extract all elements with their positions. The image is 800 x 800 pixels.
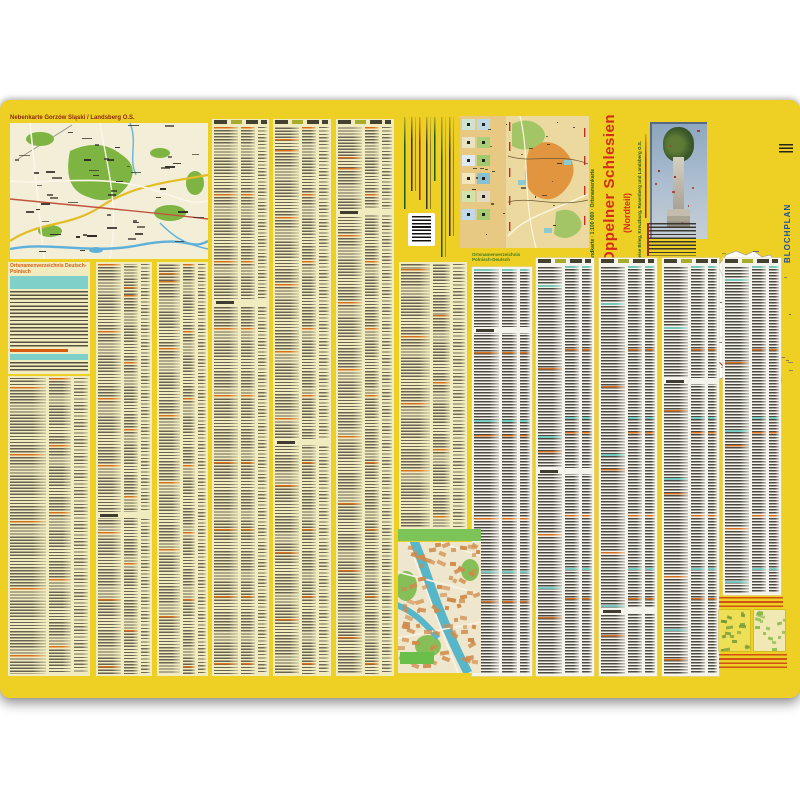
photo-flower-dots: [650, 122, 707, 239]
legend-sample-block: [719, 597, 791, 677]
index-column-group: [212, 119, 269, 676]
column-header: [725, 259, 779, 263]
price-text: [779, 144, 793, 155]
intro-highlight-note: [10, 276, 88, 289]
column-header: [601, 259, 655, 263]
index-column-group: [273, 119, 331, 676]
column-header: [338, 120, 392, 124]
cover-title: Oppelner Schlesien: [601, 114, 618, 263]
cover-subtitle: (Nordteil): [622, 193, 632, 233]
right-index-heading-line2: Polnisch-Deutsch: [472, 257, 534, 262]
inset-map-drawing: [10, 123, 208, 259]
cover-region-label: Kreise Brieg, Kreuzburg, Rosenberg und L…: [637, 141, 642, 263]
index-column-group: [96, 262, 152, 676]
cover-map-panel: [460, 116, 589, 248]
index-column-group: [472, 267, 532, 676]
index-column-group: [723, 258, 781, 595]
cover-series-label: Landkarte · 1:100 000 · Ortsnamenkarte: [590, 169, 596, 263]
column-header: [538, 259, 592, 263]
cover-legend-thumbnails: [462, 118, 504, 246]
column-header: [214, 120, 267, 124]
imprint-vertical-text-2: [441, 117, 458, 257]
imprint-vertical-text: [404, 117, 438, 209]
index-column-group: [399, 262, 467, 530]
monument-photo: [650, 122, 707, 239]
photo-caption-vertical: [645, 134, 648, 218]
city-map-title: [398, 529, 481, 541]
inset-map-title: Nebenkarte Gorzów Śląski / Landsberg O.S…: [10, 114, 208, 123]
publisher-name: BLOCHPLAN: [783, 208, 792, 263]
city-map-legend-box: [400, 652, 434, 664]
legend-sample-map: [719, 610, 750, 651]
right-index-heading: Ortsnamenverzeichnis Polnisch-Deutsch: [472, 252, 534, 265]
intro-subhead-dash: [10, 349, 68, 352]
city-map-inset: [398, 529, 481, 673]
inset-map-landsberg: Nebenkarte Gorzów Śląski / Landsberg O.S…: [10, 114, 208, 259]
index-column-group: [336, 119, 394, 676]
cover-title-block: Landkarte · 1:100 000 · Ortsnamenkarte O…: [590, 113, 642, 263]
inset-map-canvas: [10, 123, 208, 259]
column-header: [664, 259, 717, 263]
legend-caption: [719, 654, 787, 671]
index-intro-block: Ortsnamenverzeichnis Deutsch-Polnisch: [8, 262, 90, 374]
index-column-group: [8, 376, 90, 676]
intro-highlight-note2: [10, 354, 88, 360]
legend-sample-map: [754, 610, 785, 651]
index-column-group: [662, 258, 719, 676]
index-column-group: [157, 262, 208, 676]
index-column-group: [599, 258, 657, 676]
column-header: [275, 120, 329, 124]
legend-heading: [719, 597, 783, 607]
intro-paragraph: [10, 291, 88, 347]
left-index-heading: Ortsnamenverzeichnis Deutsch-Polnisch: [10, 264, 88, 275]
index-column-group: [536, 258, 594, 676]
map-sheet-back: Nebenkarte Gorzów Śląski / Landsberg O.S…: [0, 100, 800, 698]
barcode: [408, 213, 435, 246]
intro-paragraph2: [10, 362, 88, 371]
